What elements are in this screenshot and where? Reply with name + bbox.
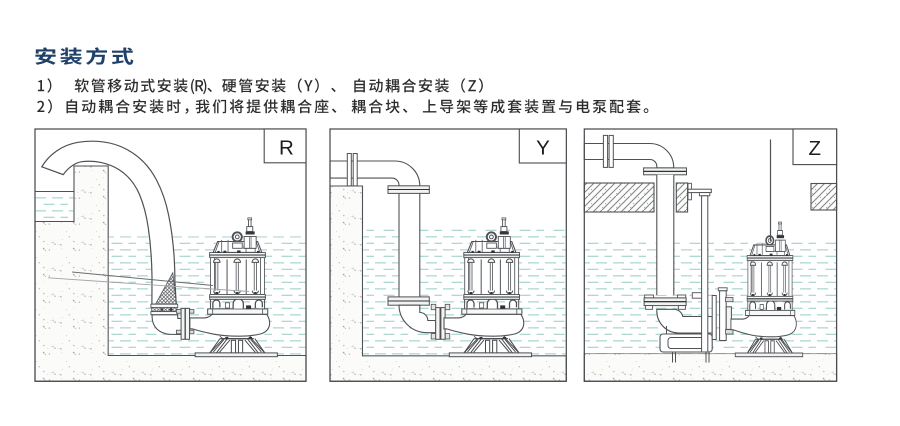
- svg-text:Z: Z: [809, 137, 822, 160]
- svg-text:R: R: [279, 137, 294, 160]
- svg-text:Y: Y: [536, 137, 550, 160]
